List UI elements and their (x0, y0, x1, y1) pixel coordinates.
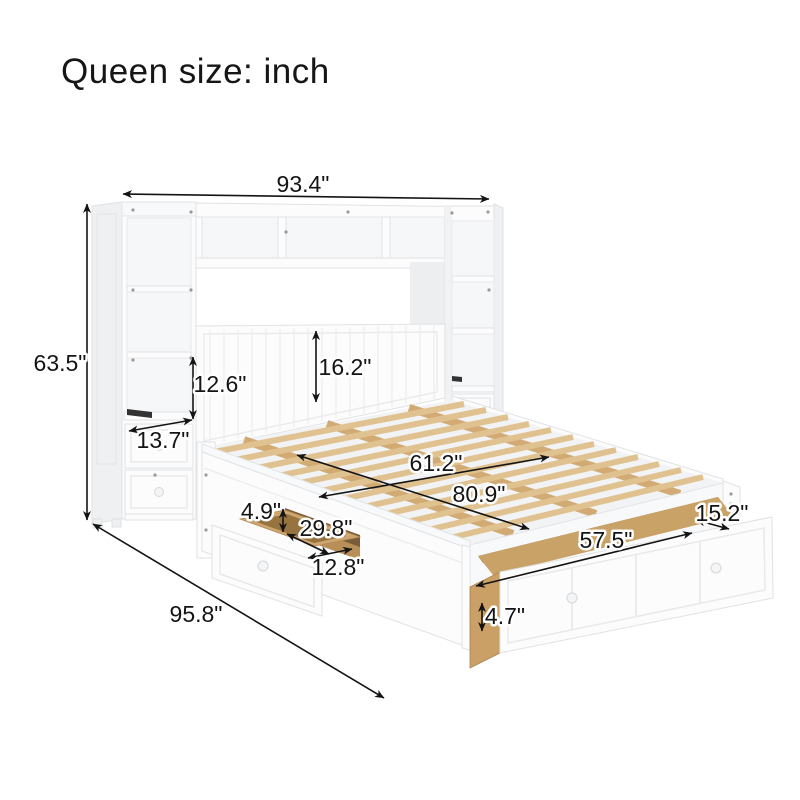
cubby-divider (196, 217, 202, 258)
dim-label: 80.9" (453, 481, 506, 507)
dim-label: 13.7" (137, 427, 190, 453)
dim-label: 57.5" (580, 527, 633, 553)
shelf-board (452, 276, 494, 282)
dim-label: 95.8" (170, 601, 223, 627)
cubby-opening (286, 217, 382, 258)
tower-base (125, 514, 193, 520)
shelf-board (127, 286, 191, 292)
cubby-divider (278, 217, 286, 258)
drawer-knob (567, 593, 577, 603)
dim-label: 15.2" (696, 500, 749, 526)
cubby-divider (382, 217, 390, 258)
nightstand-drawer (125, 470, 193, 514)
dim-foot-drawer-width: 15.2" (696, 500, 749, 529)
shelf-opening (127, 218, 191, 286)
dim-foot-drawer-height: 4.7" (482, 603, 525, 631)
recess-shadow (410, 262, 445, 326)
dim-label: 12.8" (312, 554, 365, 580)
dim-label: 4.9" (241, 498, 281, 524)
dim-label: 61.2" (410, 450, 463, 476)
shelf-board (452, 386, 494, 392)
cubby-opening (202, 217, 278, 258)
shelf-opening (452, 282, 494, 328)
shelf-opening (452, 221, 494, 276)
dim-overall-width: 93.4" (123, 171, 489, 199)
dim-overall-height: 63.5" (34, 204, 87, 520)
dim-label: 63.5" (34, 350, 87, 376)
drawer-knob (711, 563, 721, 573)
dim-label: 93.4" (277, 171, 330, 197)
dim-label: 16.2" (319, 354, 372, 380)
shelf-opening (127, 292, 191, 352)
shelf-board (127, 352, 191, 358)
dim-label: 29.8" (300, 515, 353, 541)
shelf-opening (127, 358, 191, 412)
dim-label: 4.7" (485, 603, 525, 629)
tower-inner-shade (445, 206, 452, 432)
right-side-panel (494, 204, 503, 432)
drawer-knob (258, 561, 268, 571)
left-foot (112, 519, 121, 527)
charging-station-slot (452, 376, 462, 382)
diagram-page: Queen size: inch (0, 0, 800, 800)
dim-side-drawer-width: 12.8" (308, 549, 364, 580)
dim-label: 12.6" (194, 371, 247, 397)
cubby-opening (390, 217, 445, 258)
bed-dimension-diagram: 93.4" 63.5" 95.8" 12.6" 13.7" 16.2" (0, 0, 800, 800)
drawer-knob (155, 488, 164, 497)
shelf-board (452, 328, 494, 334)
